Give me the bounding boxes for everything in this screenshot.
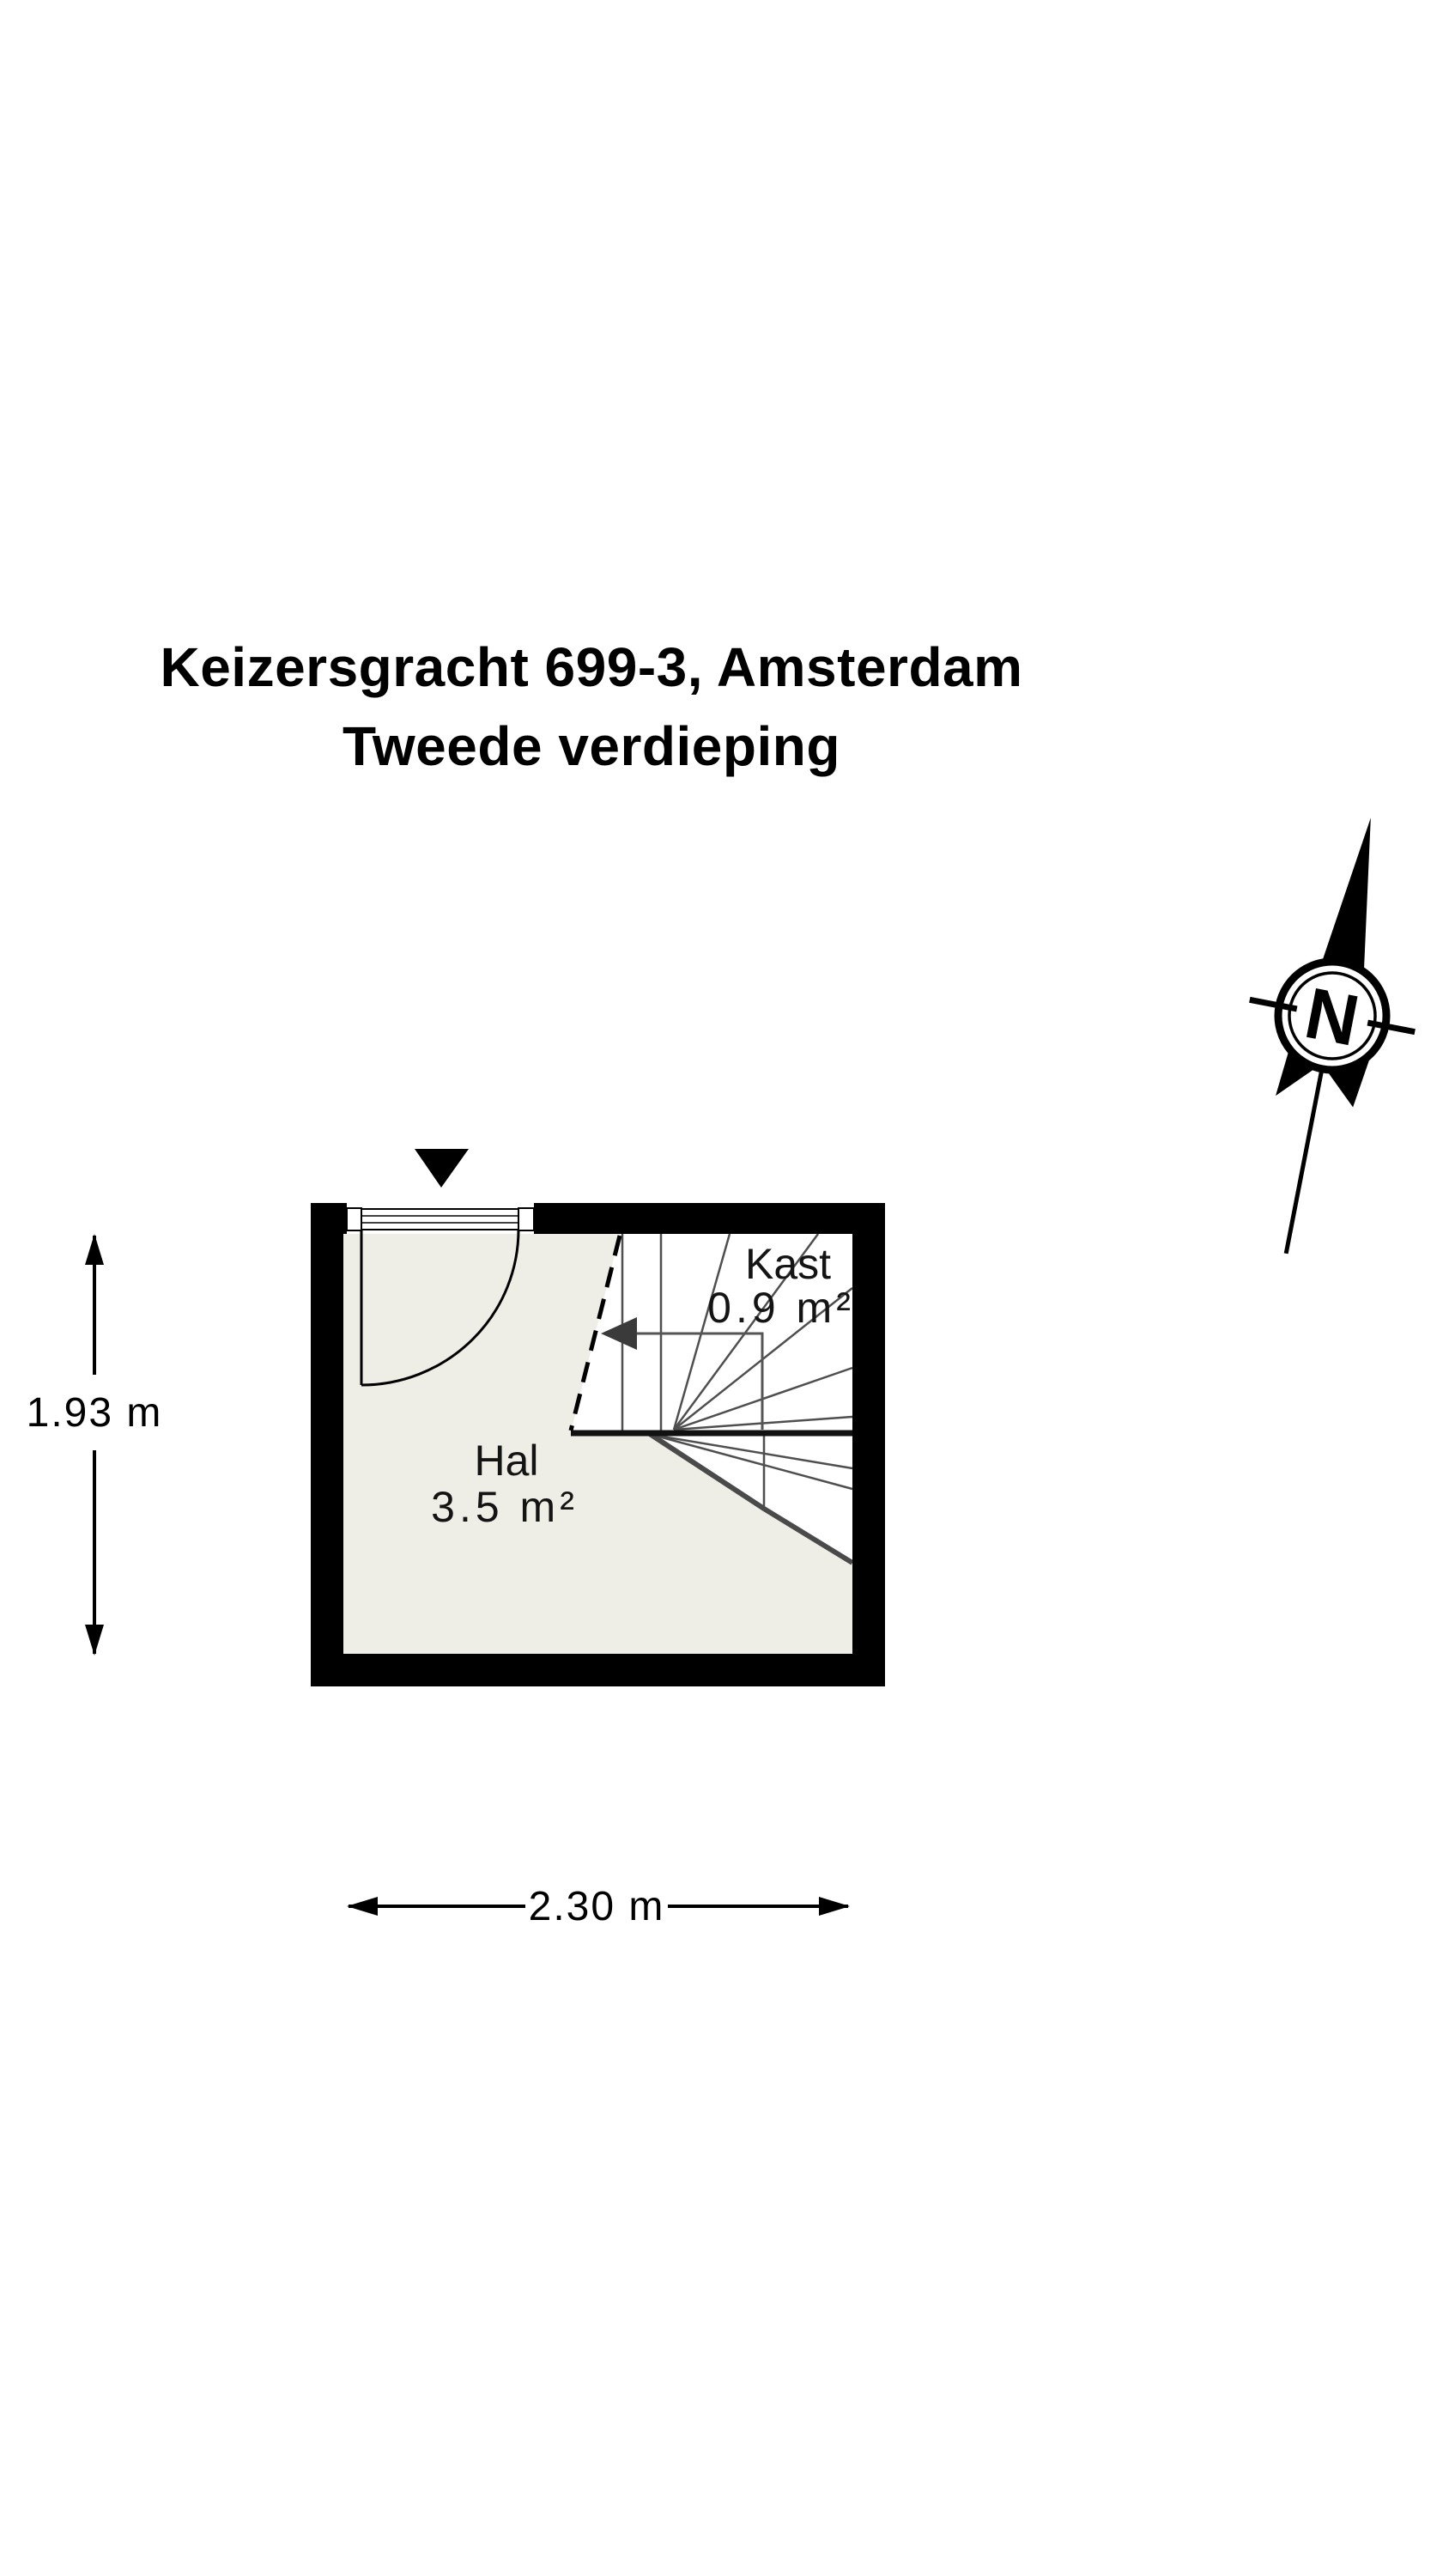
room-hal-name: Hal [474,1437,538,1485]
floor-plan-canvas: N [0,0,1449,2576]
dimension-depth-label: 1.93 m [27,1390,163,1436]
wall-right [852,1203,885,1686]
room-kast-name: Kast [745,1240,831,1288]
dimension-depth: 1.93 m [27,1234,163,1656]
compass-rose-icon: N [1203,802,1449,1270]
arrow-up-icon [85,1234,104,1265]
floorplan-page: Keizersgracht 699-3, Amsterdam Tweede ve… [0,0,1449,2576]
door-jamb-right [518,1208,534,1230]
arrow-left-icon [347,1897,378,1916]
entrance-marker-icon [415,1149,469,1188]
room-hal-area: 3.5 m² [431,1483,579,1531]
arrow-right-icon [819,1897,850,1916]
compass-north-needle [1322,814,1393,971]
arrow-down-icon [85,1625,104,1656]
door-jamb-left [347,1208,361,1230]
dimension-width: 2.30 m [347,1884,850,1929]
wall-left [311,1203,343,1686]
floor-plan: Hal 3.5 m² Kast 0.9 m² [311,1149,885,1686]
room-kast-area: 0.9 m² [707,1284,855,1332]
wall-top-left [311,1203,347,1234]
door-panel [361,1209,518,1230]
dimension-width-label: 2.30 m [529,1884,665,1929]
compass-south-line [1286,1062,1323,1254]
wall-top-right [534,1203,885,1234]
wall-bottom [311,1654,885,1686]
